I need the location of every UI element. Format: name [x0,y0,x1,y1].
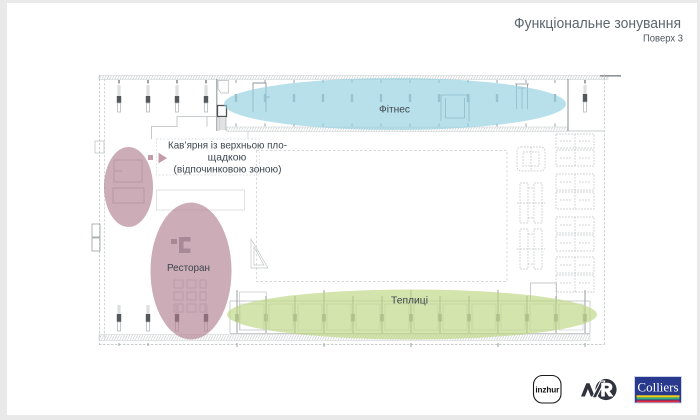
svg-text:Colliers: Colliers [637,380,678,395]
svg-text:Поверх 3: Поверх 3 [643,33,683,45]
svg-text:Кав’ярня із верхньою пло-: Кав’ярня із верхньою пло- [168,141,287,152]
svg-text:Ресторан: Ресторан [167,263,210,274]
svg-text:(відпочинковою зоною): (відпочинковою зоною) [174,165,282,176]
svg-text:Теплиці: Теплиці [391,296,428,307]
svg-text:Функціональне зонування: Функціональне зонування [514,15,681,32]
svg-text:щадкою: щадкою [208,153,247,164]
svg-text:inzhur: inzhur [535,385,560,394]
svg-text:Фітнес: Фітнес [379,105,410,116]
